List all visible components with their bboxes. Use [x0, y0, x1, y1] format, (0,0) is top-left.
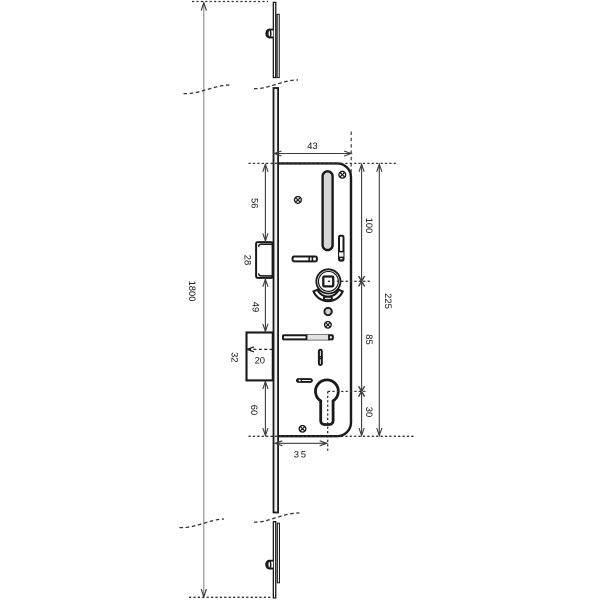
- svg-text:85: 85: [364, 334, 375, 344]
- svg-text:28: 28: [242, 255, 253, 265]
- svg-text:100: 100: [364, 218, 375, 234]
- svg-text:225: 225: [383, 293, 394, 309]
- svg-text:56: 56: [250, 198, 261, 208]
- svg-text:1800: 1800: [187, 281, 198, 302]
- svg-text:49: 49: [251, 302, 262, 312]
- svg-text:60: 60: [249, 405, 260, 415]
- svg-text:20: 20: [255, 354, 265, 365]
- svg-text:35: 35: [294, 449, 308, 460]
- svg-text:43: 43: [307, 140, 317, 151]
- svg-text:30: 30: [364, 407, 375, 417]
- svg-text:32: 32: [230, 352, 241, 362]
